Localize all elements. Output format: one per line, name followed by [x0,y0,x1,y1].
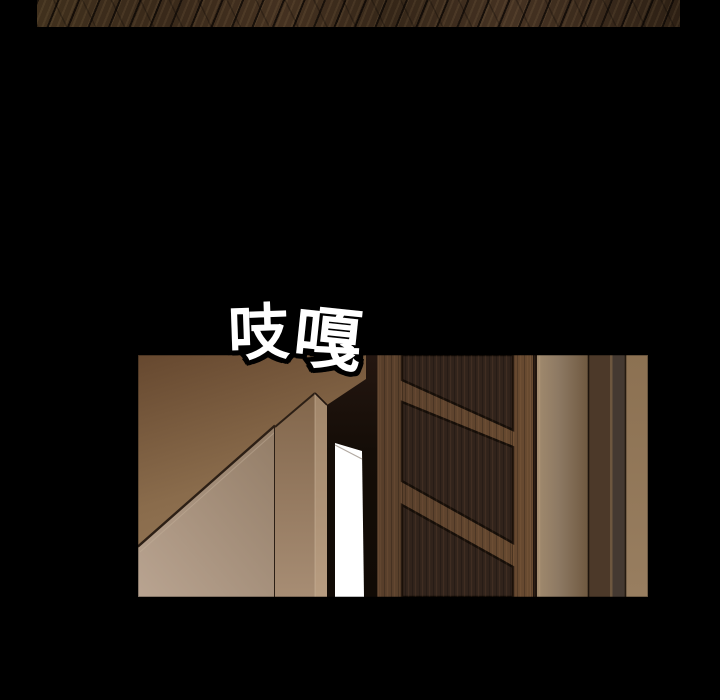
door-frame-bands [535,355,648,597]
frame-band-tan [535,355,588,597]
door-jamb-face [315,393,327,597]
sfx-char-1: 吱 [227,302,290,365]
sfx-char-2: 嘎 [290,303,365,378]
frame-band-thin-light [610,355,613,597]
sfx-text: 吱 嘎 [228,303,362,371]
frame-band-dark [588,355,610,597]
wood-floor-strip-panel [37,0,680,27]
page-background: { "sfx": { "full_text": "吱嘎", "character… [0,0,720,700]
door-leaf [377,355,535,597]
corner-wall-plane [275,393,315,597]
doorway-light-gap [335,443,364,597]
comic-page: 吱 嘎 [0,0,720,700]
door-wood-grain [377,355,535,597]
frame-band-dark2 [613,355,626,597]
frame-band-right-tan [625,355,648,597]
door-scene-panel [138,355,648,597]
door-scene-art [138,355,648,597]
